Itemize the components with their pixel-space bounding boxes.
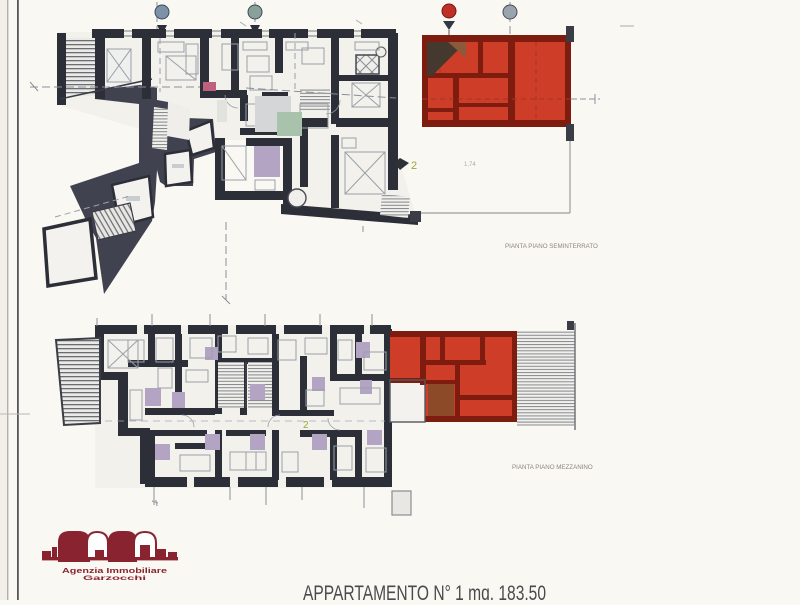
svg-text:1,74: 1,74 — [464, 162, 476, 168]
svg-text:PIANTA PIANO MEZZANINO: PIANTA PIANO MEZZANINO — [512, 464, 593, 471]
svg-text:Agenzia Immobiliare: Agenzia Immobiliare — [62, 566, 167, 575]
svg-text:2: 2 — [303, 420, 309, 431]
svg-text:Garzocchi: Garzocchi — [83, 575, 146, 582]
svg-text:APPARTAMENTO N° 1 mq. 183,50: APPARTAMENTO N° 1 mq. 183,50 — [303, 582, 546, 600]
svg-text:2: 2 — [411, 160, 417, 172]
svg-text:PIANTA PIANO SEMINTERRATO: PIANTA PIANO SEMINTERRATO — [505, 243, 598, 250]
